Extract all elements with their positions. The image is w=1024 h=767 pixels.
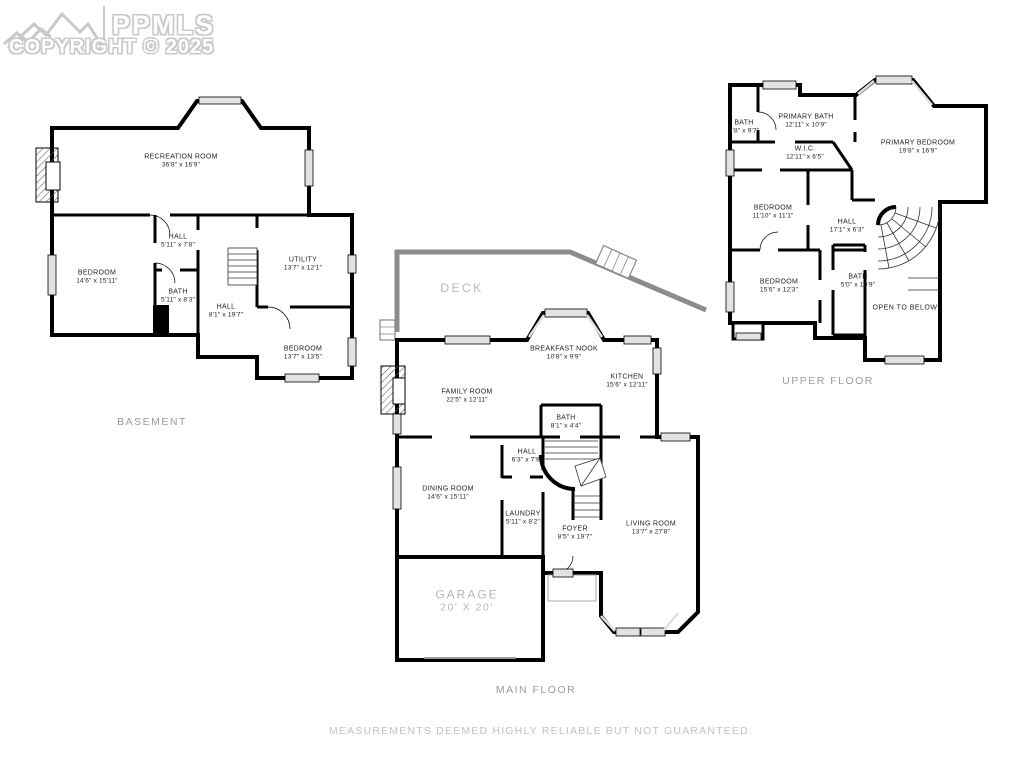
room-label-upper-hall: HALL 17'1" x 6'3" [830,218,864,235]
fireplace-icon [36,148,60,202]
room-label-upper-bedroom-2: BEDROOM 15'6" x 12'3" [760,278,798,295]
room-label-deck: DECK [440,282,483,294]
room-label-upper-bedroom-1: BEDROOM 11'10" x 11'1" [752,204,793,221]
room-label-main-bath: BATH 8'1" x 4'4" [551,414,582,431]
room-label-open-to-below: OPEN TO BELOW [873,304,938,313]
room-label-basement-hall-1: HALL 5'11" x 7'8" [161,233,195,250]
room-label-living-room: LIVING ROOM 13'7" x 27'8" [626,520,676,537]
room-label-basement-bath: BATH 5'11" x 8'3" [161,288,195,305]
floorplan-page: PPMLS COPYRIGHT © 2025 [0,0,1024,767]
room-label-primary-bath: PRIMARY BATH 12'11" x 10'9" [778,113,833,130]
room-label-kitchen: KITCHEN 15'6" x 12'11" [606,373,648,390]
basement-plan [36,97,356,382]
ppmls-logo: PPMLS COPYRIGHT © 2025 [0,0,260,70]
basement-stairs-icon [228,248,257,285]
basement-title: BASEMENT [117,416,187,428]
room-label-foyer: FOYER 8'5" x 19'7" [558,525,592,542]
main-floor-title: MAIN FLOOR [496,684,576,696]
family-room-fireplace-icon [381,366,405,414]
room-label-recreation-room: RECREATION ROOM 36'8" x 16'9" [144,153,218,170]
room-label-upper-bath-1: BATH 3'8" x 9'7" [729,119,760,136]
room-label-breakfast-nook: BREAKFAST NOOK 10'8" x 9'9" [530,345,598,362]
room-label-dining-room: DINING ROOM 14'6" x 15'11" [422,485,474,502]
room-label-basement-bedroom-2: BEDROOM 13'7" x 13'5" [284,345,322,362]
room-label-main-hall: HALL 6'3" x 7'9" [512,448,543,465]
deck-stairs-icon [595,246,636,279]
room-label-primary-bedroom: PRIMARY BEDROOM 19'8" x 16'9" [881,139,955,156]
room-label-family-room: FAMILY ROOM 22'5" x 12'11" [441,388,492,405]
main-floor-plan [380,246,706,660]
room-label-laundry: LAUNDRY 5'11" x 8'2" [505,510,540,527]
logo-copyright: COPYRIGHT © 2025 [9,36,214,59]
deck-side-stairs-icon [380,320,395,340]
room-label-garage: GARAGE 20' X 20' [435,589,498,614]
upper-floor-title: UPPER FLOOR [782,375,874,387]
disclaimer-text: MEASUREMENTS DEEMED HIGHLY RELIABLE BUT … [329,725,753,737]
room-label-basement-hall-2: HALL 8'1" x 19'7" [209,303,243,320]
chimney-block [153,305,169,333]
room-label-upper-bath-2: BATH 5'0" x 10'9" [841,273,875,290]
room-label-wic: W.I.C. 12'11" x 6'5" [786,145,824,162]
porch-outline [548,575,596,601]
room-label-utility: UTILITY 13'7" x 12'1" [284,256,322,273]
room-label-basement-bedroom-1: BEDROOM 14'6" x 15'11" [76,269,118,286]
